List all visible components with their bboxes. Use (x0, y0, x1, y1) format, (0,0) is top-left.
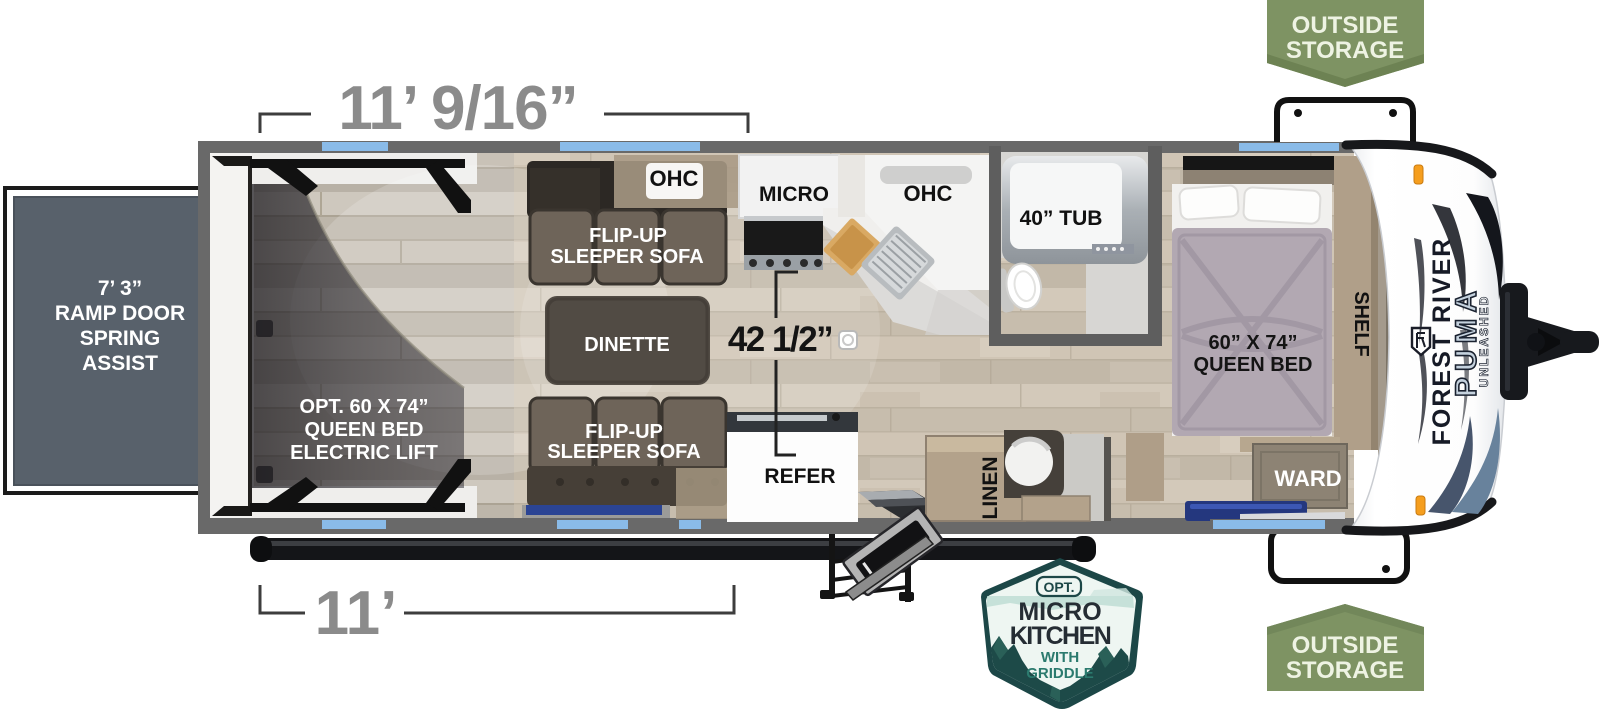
svg-text:LINEN: LINEN (979, 457, 1002, 520)
svg-text:7’ 3”: 7’ 3” (98, 277, 142, 300)
svg-text:FLIP-UP: FLIP-UP (589, 225, 667, 247)
svg-text:60” X 74”: 60” X 74” (1209, 332, 1298, 354)
svg-text:REFER: REFER (764, 465, 835, 488)
svg-text:UNLEASHED: UNLEASHED (1477, 295, 1491, 388)
svg-text:42 1/2”: 42 1/2” (728, 320, 832, 359)
svg-text:SLEEPER SOFA: SLEEPER SOFA (547, 441, 700, 463)
svg-text:RAMP DOOR: RAMP DOOR (55, 302, 185, 325)
svg-text:ELECTRIC LIFT: ELECTRIC LIFT (290, 442, 438, 464)
svg-text:11’: 11’ (315, 579, 398, 648)
svg-text:11’ 9/16”: 11’ 9/16” (338, 74, 577, 143)
svg-text:SLEEPER SOFA: SLEEPER SOFA (550, 246, 703, 268)
svg-text:STORAGE: STORAGE (1286, 657, 1404, 684)
svg-text:DINETTE: DINETTE (584, 334, 670, 356)
svg-text:OPT.: OPT. (1043, 579, 1074, 595)
svg-text:GRIDDLE: GRIDDLE (1026, 665, 1094, 682)
svg-text:OUTSIDE: OUTSIDE (1292, 12, 1399, 39)
svg-text:WARD: WARD (1274, 466, 1341, 491)
svg-text:OPT. 60 X 74”: OPT. 60 X 74” (300, 396, 429, 418)
svg-text:ASSIST: ASSIST (82, 352, 158, 375)
svg-text:40” TUB: 40” TUB (1020, 207, 1103, 230)
svg-text:QUEEN BED: QUEEN BED (1194, 354, 1313, 376)
svg-text:OUTSIDE: OUTSIDE (1292, 632, 1399, 659)
svg-text:FLIP-UP: FLIP-UP (585, 421, 663, 443)
svg-text:SPRING: SPRING (80, 327, 161, 350)
svg-text:KITCHEN: KITCHEN (1010, 622, 1111, 650)
svg-text:STORAGE: STORAGE (1286, 37, 1404, 64)
svg-text:WITH: WITH (1041, 649, 1079, 666)
svg-text:OHC: OHC (650, 166, 699, 191)
svg-text:QUEEN BED: QUEEN BED (305, 419, 424, 441)
svg-text:MICRO: MICRO (759, 183, 829, 206)
svg-text:OHC: OHC (904, 181, 953, 206)
svg-text:SHELF: SHELF (1350, 291, 1372, 357)
